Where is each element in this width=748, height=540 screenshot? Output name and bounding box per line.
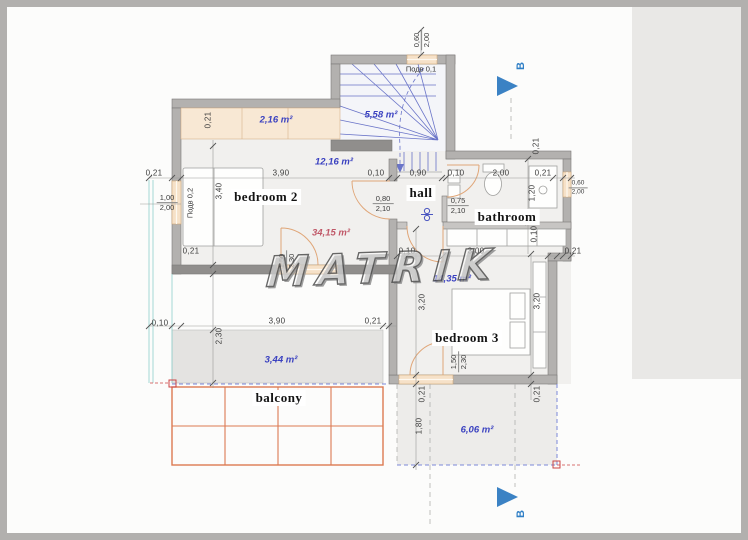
dim-left-window: 1,00 2,00	[157, 193, 178, 213]
dim-bath-right-seg: 1,20	[528, 185, 537, 202]
dim-partition1: 0,10	[368, 169, 385, 178]
area-bedroom2-zone: 12,16 m²	[315, 157, 353, 168]
left-window-note: Подв 0,2	[186, 188, 195, 218]
dim-value: 1,00	[157, 193, 178, 203]
dim-row3-bedroom2: 3,90	[269, 317, 286, 326]
dim-terrace-height: 1,80	[415, 418, 424, 435]
dim-closet-depth: 0,21	[204, 112, 213, 129]
area-closet: 2,16 m²	[260, 115, 293, 126]
dim-bedroom3-wall-bl: 0,21	[418, 386, 427, 403]
dim-value: 2,10	[451, 207, 466, 216]
floorplan-page: 0,21 3,90 0,10 0,90 0,10 2,00 0,21 0,21 …	[0, 0, 748, 540]
dim-bath-door: 0,75 2,10	[448, 196, 469, 216]
dim-bedroom3-wall-br: 0,21	[533, 386, 542, 403]
dim-bedroom2-width: 3,90	[273, 169, 290, 178]
area-level-total: 34,15 m²	[312, 228, 350, 239]
stair-note: Подв 0,1	[406, 65, 436, 74]
dim-value: 2,00	[160, 204, 175, 213]
section-label-top: B	[515, 62, 527, 70]
dim-value: 0,60	[412, 30, 422, 51]
dim-left-offset: 0,10	[152, 319, 169, 328]
room-label-balcony: balcony	[253, 390, 306, 406]
dim-bedroom2-height: 3,40	[215, 183, 224, 200]
dim-partition2: 0,10	[448, 169, 465, 178]
dim-top-window: 0,60 2,00	[412, 30, 432, 51]
dim-bath-wall-thick: 0,10	[530, 226, 539, 243]
dim-value: 2,00	[572, 189, 585, 197]
dim-value: 2,30	[460, 355, 469, 370]
dim-bath-top-wall: 0,21	[532, 138, 541, 155]
room-label-bathroom: bathroom	[475, 209, 540, 225]
dim-hall-width: 0,90	[410, 169, 427, 178]
dim-value: 0,80	[373, 194, 394, 204]
dim-wall-left: 0,21	[146, 169, 163, 178]
section-label-bottom: B	[515, 510, 527, 518]
dim-value: 0,75	[448, 196, 469, 206]
room-label-hall: hall	[407, 185, 436, 201]
dim-value: 2,10	[376, 205, 391, 214]
dim-bedroom3-door: 1,50 2,30	[449, 352, 469, 373]
dim-value: 1,50	[449, 352, 459, 373]
room-label-bedroom3: bedroom 3	[432, 330, 502, 346]
area-terrace: 6,06 m²	[461, 425, 494, 436]
dim-bedroom2-door: 0,80 2,10	[373, 194, 394, 214]
dim-row2-wall-right: 0,21	[565, 247, 582, 256]
dim-row3-wall: 0,21	[365, 317, 382, 326]
dim-strip-height: 2,30	[215, 328, 224, 345]
dim-bedroom3-height-r: 3,20	[533, 293, 542, 310]
dim-value: 2,00	[423, 33, 432, 48]
dim-bathroom-width: 2,00	[493, 169, 510, 178]
area-stairs: 5,58 m²	[365, 110, 398, 121]
dim-left-wall-lower: 0,21	[183, 247, 200, 256]
dim-wall-right: 0,21	[535, 169, 552, 178]
room-label-bedroom2: bedroom 2	[231, 189, 301, 205]
dim-bath-window: 0,60 2,00	[569, 179, 588, 196]
dim-value: 0,60	[569, 179, 588, 188]
area-roof-strip: 3,44 m²	[265, 355, 298, 366]
dim-bedroom3-height-l: 3,20	[418, 294, 427, 311]
watermark: MATRIK	[265, 239, 502, 296]
